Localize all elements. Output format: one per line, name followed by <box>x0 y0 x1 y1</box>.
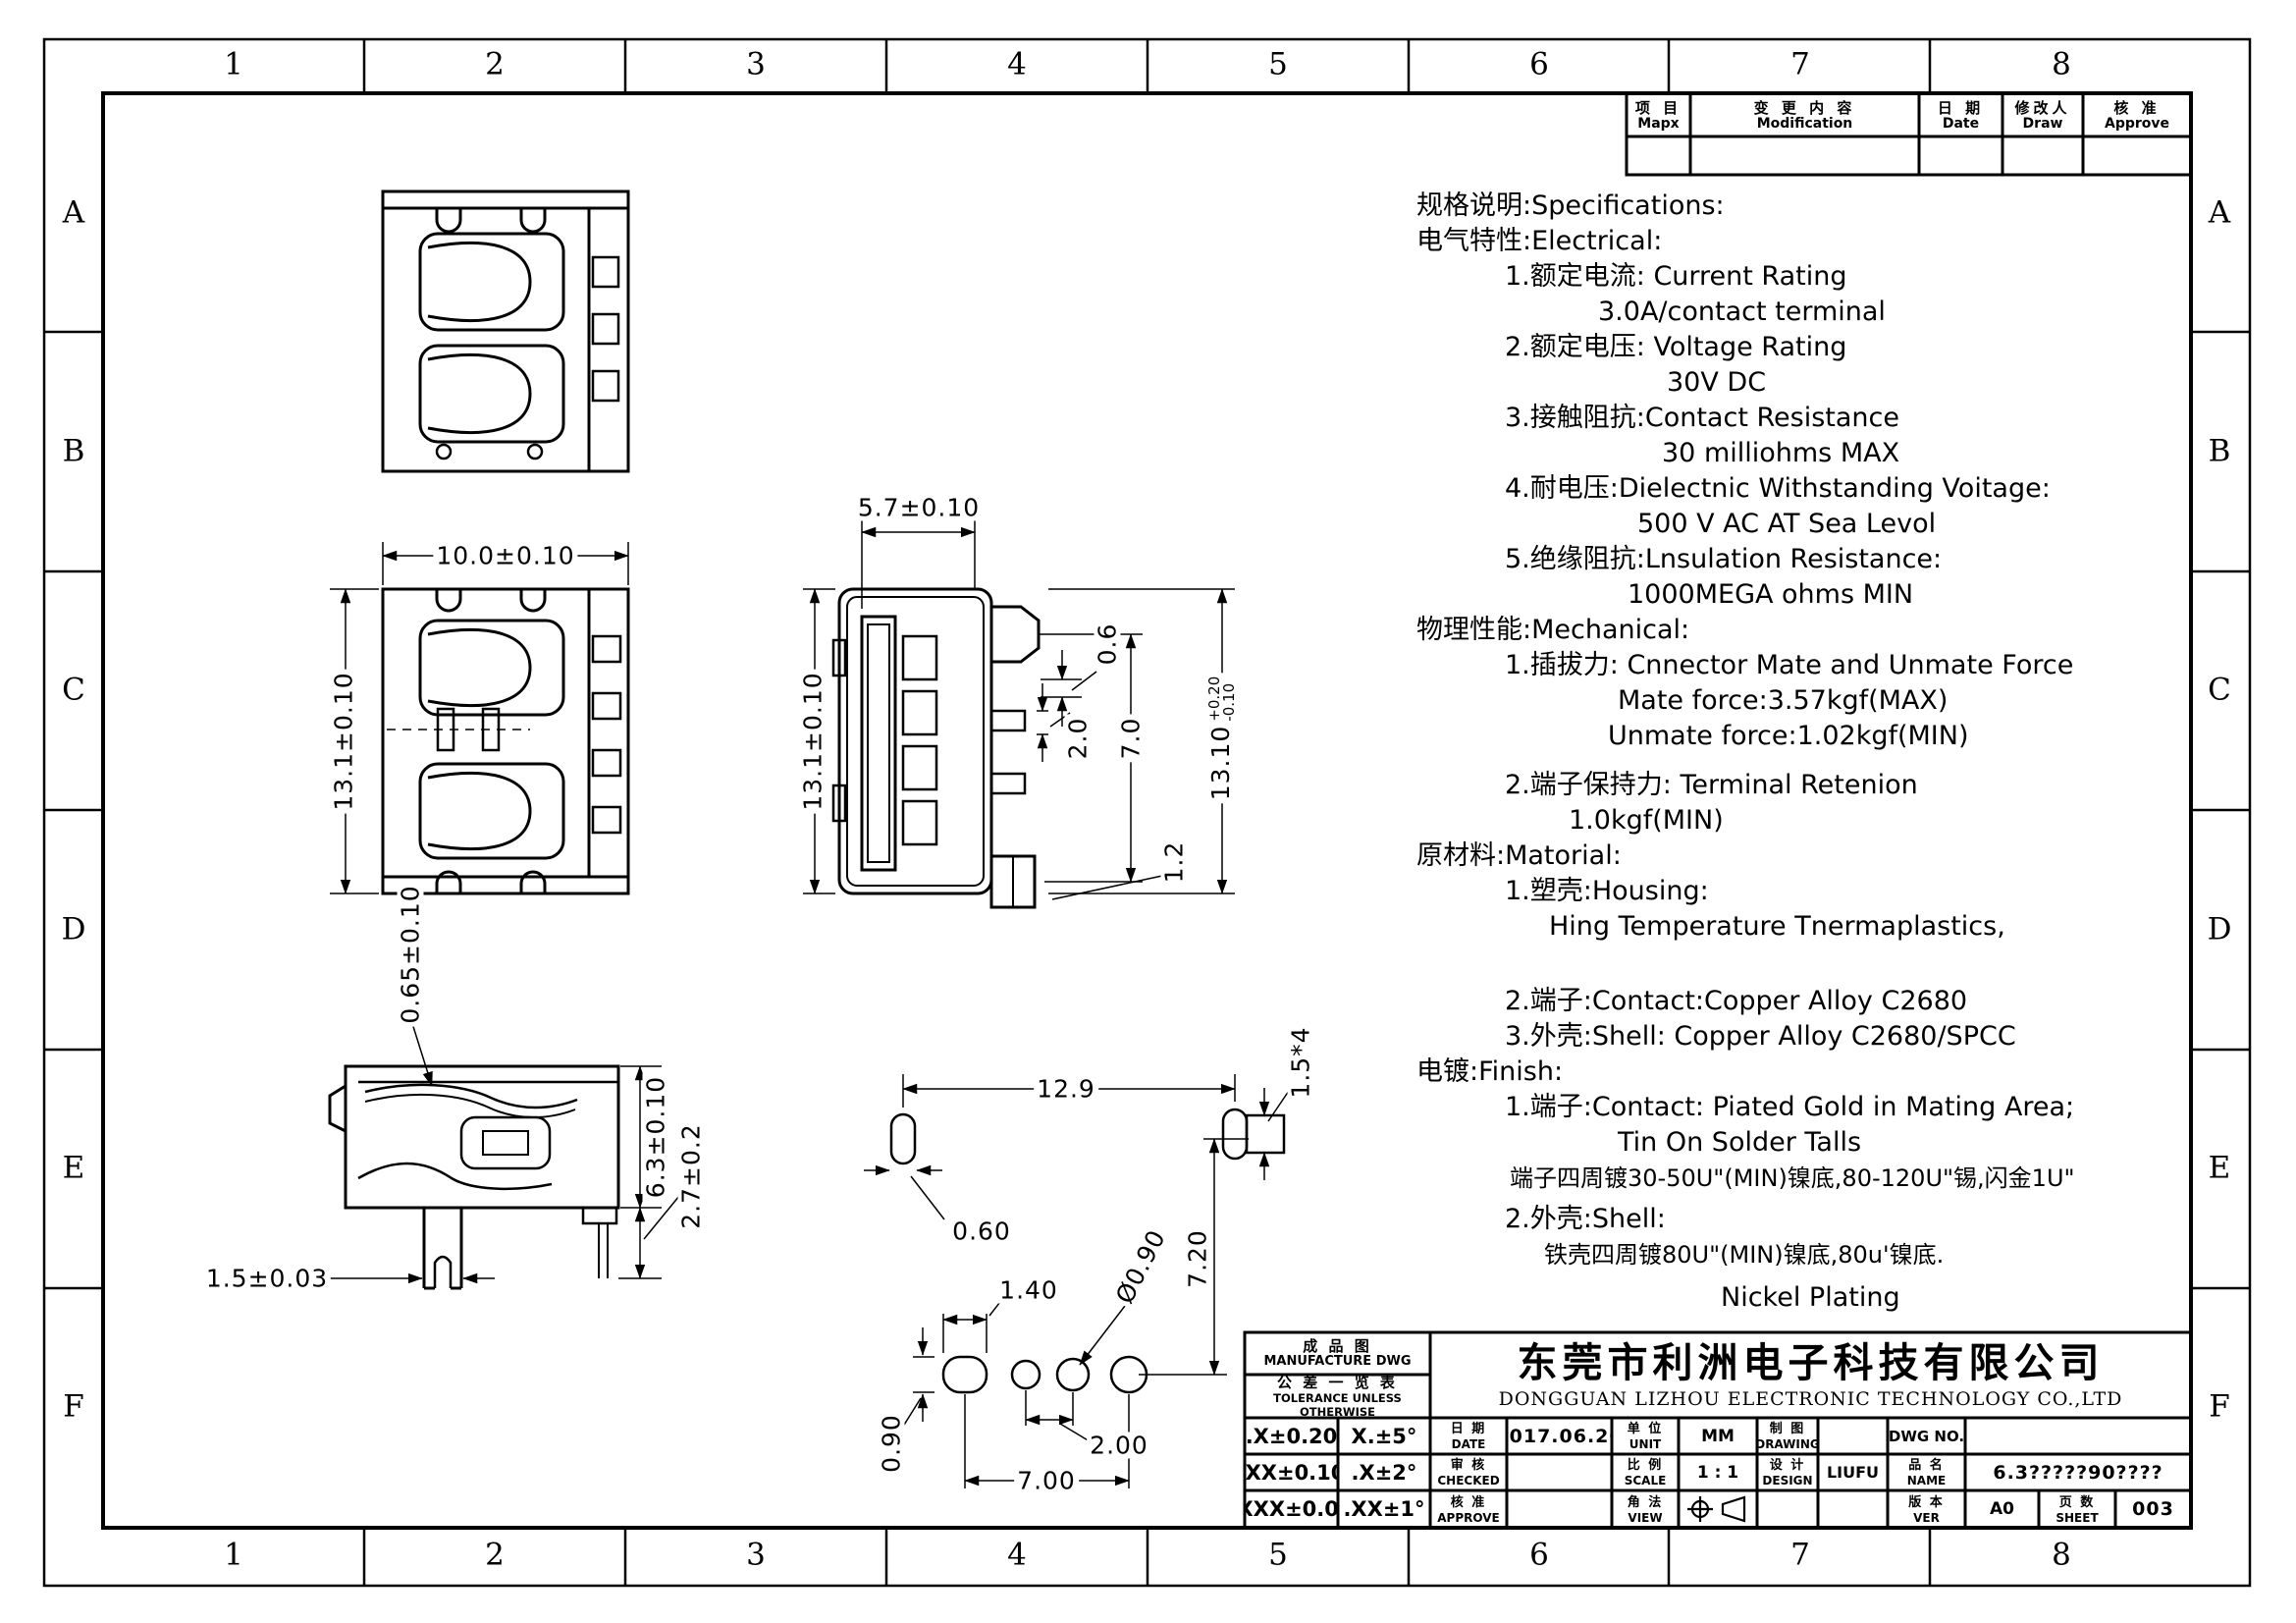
zone-col-top-4: 4 <box>1007 50 1027 81</box>
tol-ang2: .X±2° <box>1338 1454 1430 1490</box>
zone-row-left-e: E <box>63 1154 85 1184</box>
spec-line: 物理性能:Mechanical: <box>1416 613 2202 648</box>
dim-fork: 1.5±0.03 <box>203 1266 331 1292</box>
zone-col-bottom-7: 7 <box>1790 1541 1810 1571</box>
zone-row-right-d: D <box>2208 915 2232 946</box>
field-approve-label: 核 准 APPROVE <box>1430 1490 1507 1528</box>
field-date-value: 2017.06.20 <box>1507 1418 1612 1454</box>
dim-row-span: 7.00 <box>1014 1468 1079 1494</box>
specifications-block: 规格说明:Specifications: 电气特性:Electrical: 1.… <box>1416 189 2202 1316</box>
spec-line: 规格说明:Specifications: <box>1416 189 2202 224</box>
field-dwgno-label: DWG NO. <box>1888 1418 1965 1454</box>
spec-line: 端子四周镀30-50U"(MIN)镍底,80-120U"锡,闪金1U" <box>1510 1161 2202 1196</box>
field-scale-value: 1 : 1 <box>1679 1454 1757 1490</box>
zone-row-left-a: A <box>63 198 84 229</box>
zone-col-bottom-8: 8 <box>2052 1541 2071 1571</box>
spec-line: Tin On Solder Talls <box>1618 1125 2202 1161</box>
dim-vertical-span: 7.20 <box>1185 1226 1211 1291</box>
field-drawing-value <box>1818 1418 1888 1454</box>
dim-slot-width: 1.40 <box>996 1277 1061 1304</box>
spec-line: 30 milliohms MAX <box>1662 436 2202 471</box>
zone-col-top-1: 1 <box>224 50 243 81</box>
dim-overall-height: 13.10+0.20-0.10 <box>1206 674 1238 804</box>
mod-header-draw: 修改人 Draw <box>2002 93 2083 136</box>
company-name-en: DONGGUAN LIZHOU ELECTRONIC TECHNOLOGY CO… <box>1499 1386 2123 1412</box>
company-block: 东莞市利洲电子科技有限公司 DONGGUAN LIZHOU ELECTRONIC… <box>1430 1332 2191 1418</box>
spec-line: 30V DC <box>1667 365 2202 401</box>
zone-col-bottom-4: 4 <box>1007 1541 1027 1571</box>
spec-line: 2.额定电压: Voltage Rating <box>1505 330 2202 365</box>
spec-line: 1.0kgf(MIN) <box>1569 803 2202 839</box>
field-sheet-label: 页 数 SHEET <box>2039 1490 2115 1528</box>
dim-pin-width: 2.0 <box>1065 715 1092 763</box>
spec-line: 原材料:Matorial: <box>1416 839 2202 874</box>
zone-col-bottom-2: 2 <box>485 1541 505 1571</box>
spec-line: Mate force:3.57kgf(MAX) <box>1618 683 2202 719</box>
field-unit-label: 单 位 UNIT <box>1612 1418 1679 1454</box>
zone-col-top-8: 8 <box>2052 50 2071 81</box>
zone-col-top-2: 2 <box>485 50 505 81</box>
dim-lip: 0.65±0.10 <box>398 882 424 1026</box>
field-design-value: LIUFU <box>1818 1454 1888 1490</box>
spec-line: 3.0A/contact terminal <box>1598 295 2202 330</box>
spec-line: 500 V AC AT Sea Levol <box>1637 507 2202 542</box>
field-unit-value: MM <box>1679 1418 1757 1454</box>
spec-line: 2.端子保持力: Terminal Retenion <box>1505 768 2202 803</box>
third-angle-projection-icon <box>1685 1494 1750 1524</box>
dim-leg: 2.7±0.2 <box>678 1120 705 1231</box>
zone-col-top-6: 6 <box>1529 50 1549 81</box>
mod-header-modification: 变 更 内 容 Modification <box>1690 93 1919 136</box>
dim-face-width: 10.0±0.10 <box>433 543 577 569</box>
field-scale-label: 比 例 SCALE <box>1612 1454 1679 1490</box>
dim-pin-offset: 1.2 <box>1161 839 1188 887</box>
spec-line: 5.绝缘阻抗:Lnsulation Resistance: <box>1505 542 2202 577</box>
field-empty-1 <box>1757 1490 1818 1528</box>
dim-pin-gap: 0.6 <box>1095 621 1121 669</box>
view-side-elevation <box>330 1017 679 1288</box>
field-date-label: 日 期 DATE <box>1430 1418 1507 1454</box>
title-manufacture-dwg: 成 品 图 MANUFACTURE DWG <box>1245 1332 1430 1375</box>
spec-line: Unmate force:1.02kgf(MIN) <box>1608 719 2202 754</box>
company-name-cn: 东莞市利洲电子科技有限公司 <box>1518 1339 2105 1386</box>
tol-xx: .XX±0.10 <box>1245 1454 1338 1490</box>
dim-slot-height: 0.90 <box>879 1411 905 1476</box>
zone-col-bottom-5: 5 <box>1268 1541 1288 1571</box>
spec-line: 1.塑壳:Housing: <box>1505 874 2202 909</box>
dim-pin-span: 7.0 <box>1118 715 1145 763</box>
zone-col-bottom-3: 3 <box>746 1541 766 1571</box>
mod-header-date: 日 期 Date <box>1919 93 2002 136</box>
tol-ang1: X.±5° <box>1338 1418 1430 1454</box>
zone-col-top-5: 5 <box>1268 50 1288 81</box>
spec-line: Hing Temperature Tnermaplastics, <box>1549 909 2202 945</box>
zone-row-right-c: C <box>2208 676 2231 706</box>
field-drawing-label: 制 图 DRAWING <box>1757 1418 1818 1454</box>
dim-body-height: 6.3±0.10 <box>643 1073 669 1201</box>
tol-xxx: .XXX±0.05 <box>1245 1490 1338 1528</box>
zone-row-right-a: A <box>2209 198 2230 229</box>
field-checked-value <box>1507 1454 1612 1490</box>
field-name-label: 品 名 NAME <box>1888 1454 1965 1490</box>
field-view-label: 角 法 VIEW <box>1612 1490 1679 1528</box>
field-sheet-value: 003 <box>2115 1490 2191 1528</box>
zone-row-left-d: D <box>62 915 86 946</box>
view-pcb-footprint <box>864 1074 1291 1488</box>
view-face-front <box>330 542 628 893</box>
spec-line: 1000MEGA ohms MIN <box>1628 577 2202 613</box>
dim-pad-width: 0.60 <box>949 1218 1014 1245</box>
field-ver-value: A0 <box>1965 1490 2039 1528</box>
spec-line: 1.插拔力: Cnnector Mate and Unmate Force <box>1505 648 2202 683</box>
zone-col-bottom-6: 6 <box>1529 1541 1549 1571</box>
zone-row-right-b: B <box>2209 437 2231 467</box>
spec-line: 3.接触阻抗:Contact Resistance <box>1505 401 2202 436</box>
spec-line: 4.耐电压:Dielectnic Withstanding Voitage: <box>1505 471 2202 507</box>
zone-col-top-7: 7 <box>1790 50 1810 81</box>
dim-section-width: 5.7±0.10 <box>855 495 983 521</box>
field-name-value: 6.3?????90???? <box>1965 1454 2191 1490</box>
spec-line: 电气特性:Electrical: <box>1416 224 2202 259</box>
field-design-label: 设 计 DESIGN <box>1757 1454 1818 1490</box>
field-dwgno-value <box>1965 1418 2191 1454</box>
zone-row-left-f: F <box>63 1392 84 1423</box>
dim-face-height: 13.1±0.10 <box>331 669 357 813</box>
mod-header-approve: 核 准 Approve <box>2083 93 2191 136</box>
mod-header-item: 项 目 Mapx <box>1627 93 1690 136</box>
drawing-sheet: 1 2 3 4 5 6 7 8 1 2 3 4 5 6 7 8 A B C D … <box>0 0 2296 1623</box>
field-empty-2 <box>1818 1490 1888 1528</box>
zone-col-bottom-1: 1 <box>224 1541 243 1571</box>
zone-row-right-e: E <box>2209 1154 2231 1184</box>
zone-row-right-f: F <box>2209 1392 2230 1423</box>
dim-pad4: 1.5*4 <box>1288 1023 1314 1101</box>
tol-x: .X±0.20 <box>1245 1418 1338 1454</box>
zone-col-top-3: 3 <box>746 50 766 81</box>
field-view-symbol <box>1679 1490 1757 1528</box>
field-checked-label: 审 核 CHECKED <box>1430 1454 1507 1490</box>
spec-line: Nickel Plating <box>1721 1280 2202 1316</box>
spec-line: 2.外壳:Shell: <box>1505 1202 2202 1237</box>
spec-line: 铁壳四周镀80U"(MIN)镍底,80u'镍底. <box>1544 1237 2202 1272</box>
title-tolerance-header: 公 差 一 览 表 TOLERANCE UNLESS OTHERWISE <box>1245 1375 1430 1418</box>
field-ver-label: 版 本 VER <box>1888 1490 1965 1528</box>
view-face-top <box>383 191 628 471</box>
zone-row-left-c: C <box>62 676 85 706</box>
spec-line: 电镀:Finish: <box>1416 1055 2202 1090</box>
dim-footprint-span: 12.9 <box>1034 1076 1098 1103</box>
spec-line: 3.外壳:Shell: Copper Alloy C2680/SPCC <box>1505 1019 2202 1055</box>
zone-row-left-b: B <box>63 437 85 467</box>
spec-line: 2.端子:Contact:Copper Alloy C2680 <box>1505 984 2202 1019</box>
field-approve-value <box>1507 1490 1612 1528</box>
dim-section-height: 13.1±0.10 <box>800 669 827 813</box>
tol-ang3: .XX±1° <box>1338 1490 1430 1528</box>
dim-pitch: 2.00 <box>1087 1433 1151 1459</box>
spec-line: 1.额定电流: Current Rating <box>1505 259 2202 295</box>
spec-line: 1.端子:Contact: Piated Gold in Mating Area… <box>1505 1090 2202 1125</box>
